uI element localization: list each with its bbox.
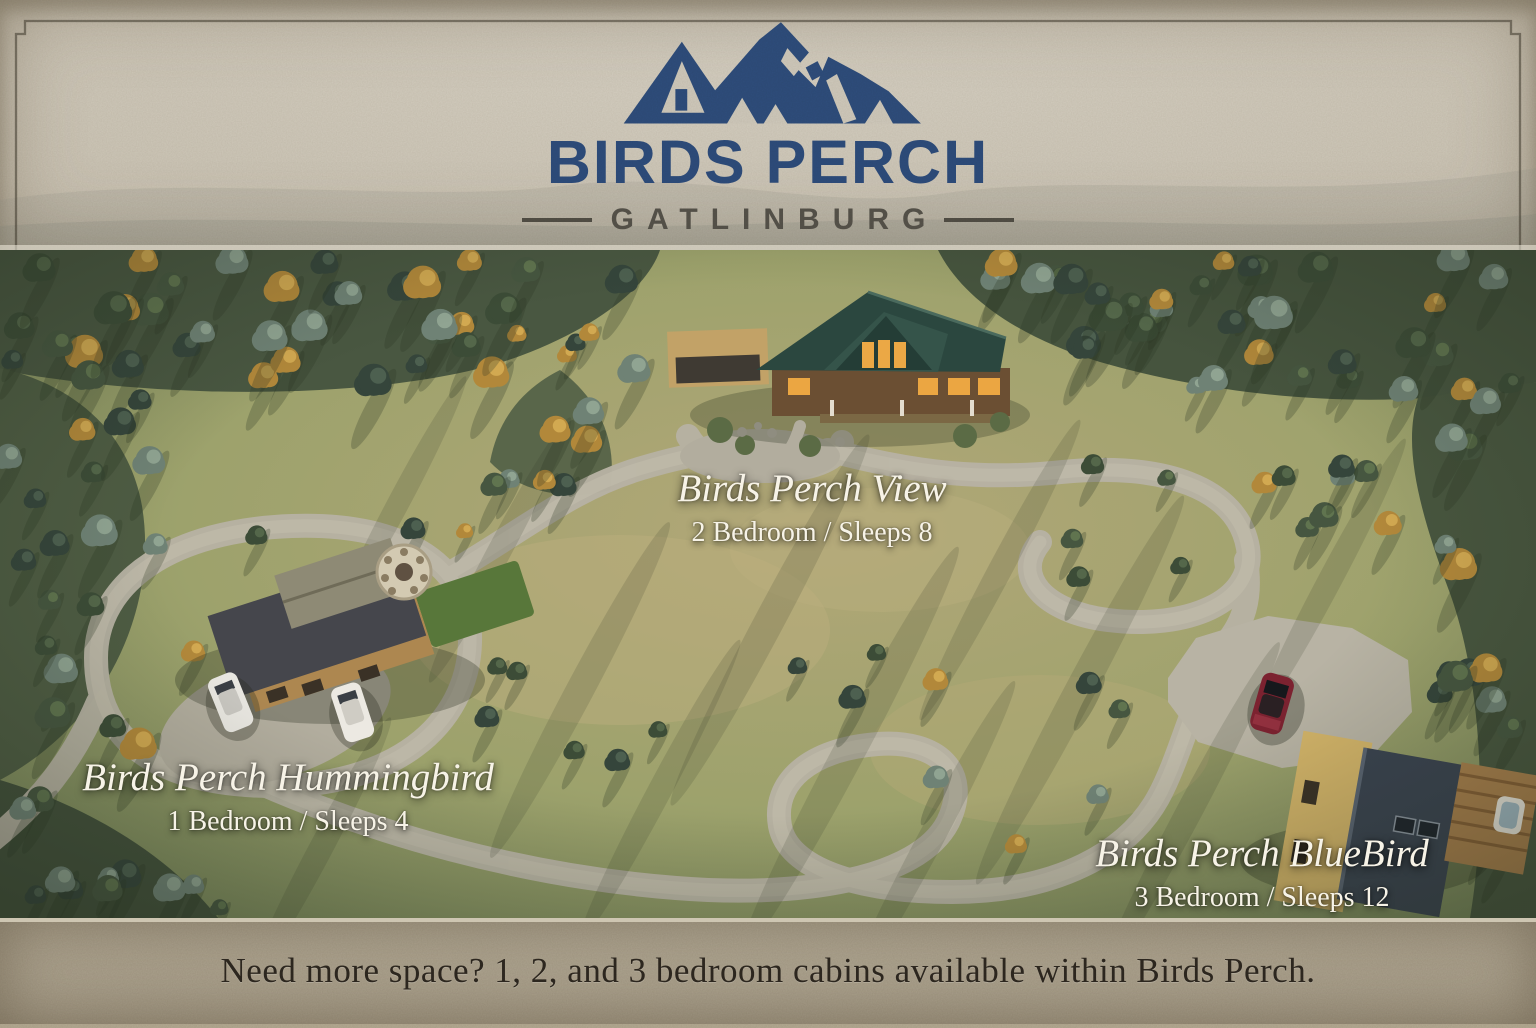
logo-header: BIRDS PERCH GATLINBURG (0, 18, 1536, 235)
brand-name: BIRDS PERCH (547, 132, 989, 193)
divider-dash-right (944, 218, 1014, 222)
divider-dash-left (522, 218, 592, 222)
vignette (0, 250, 1536, 918)
brand-location: GATLINBURG (611, 205, 939, 235)
mountain-icon (603, 18, 933, 130)
header-band: BIRDS PERCH GATLINBURG (0, 0, 1536, 250)
site-map-render: Birds Perch View 2 Bedroom / Sleeps 8 Bi… (0, 250, 1536, 918)
brand-location-row: GATLINBURG (522, 205, 1015, 235)
footer-band: Need more space? 1, 2, and 3 bedroom cab… (0, 918, 1536, 1024)
poster: BIRDS PERCH GATLINBURG (0, 0, 1536, 1024)
aerial-scene (0, 250, 1536, 918)
footer-note: Need more space? 1, 2, and 3 bedroom cab… (221, 951, 1316, 995)
